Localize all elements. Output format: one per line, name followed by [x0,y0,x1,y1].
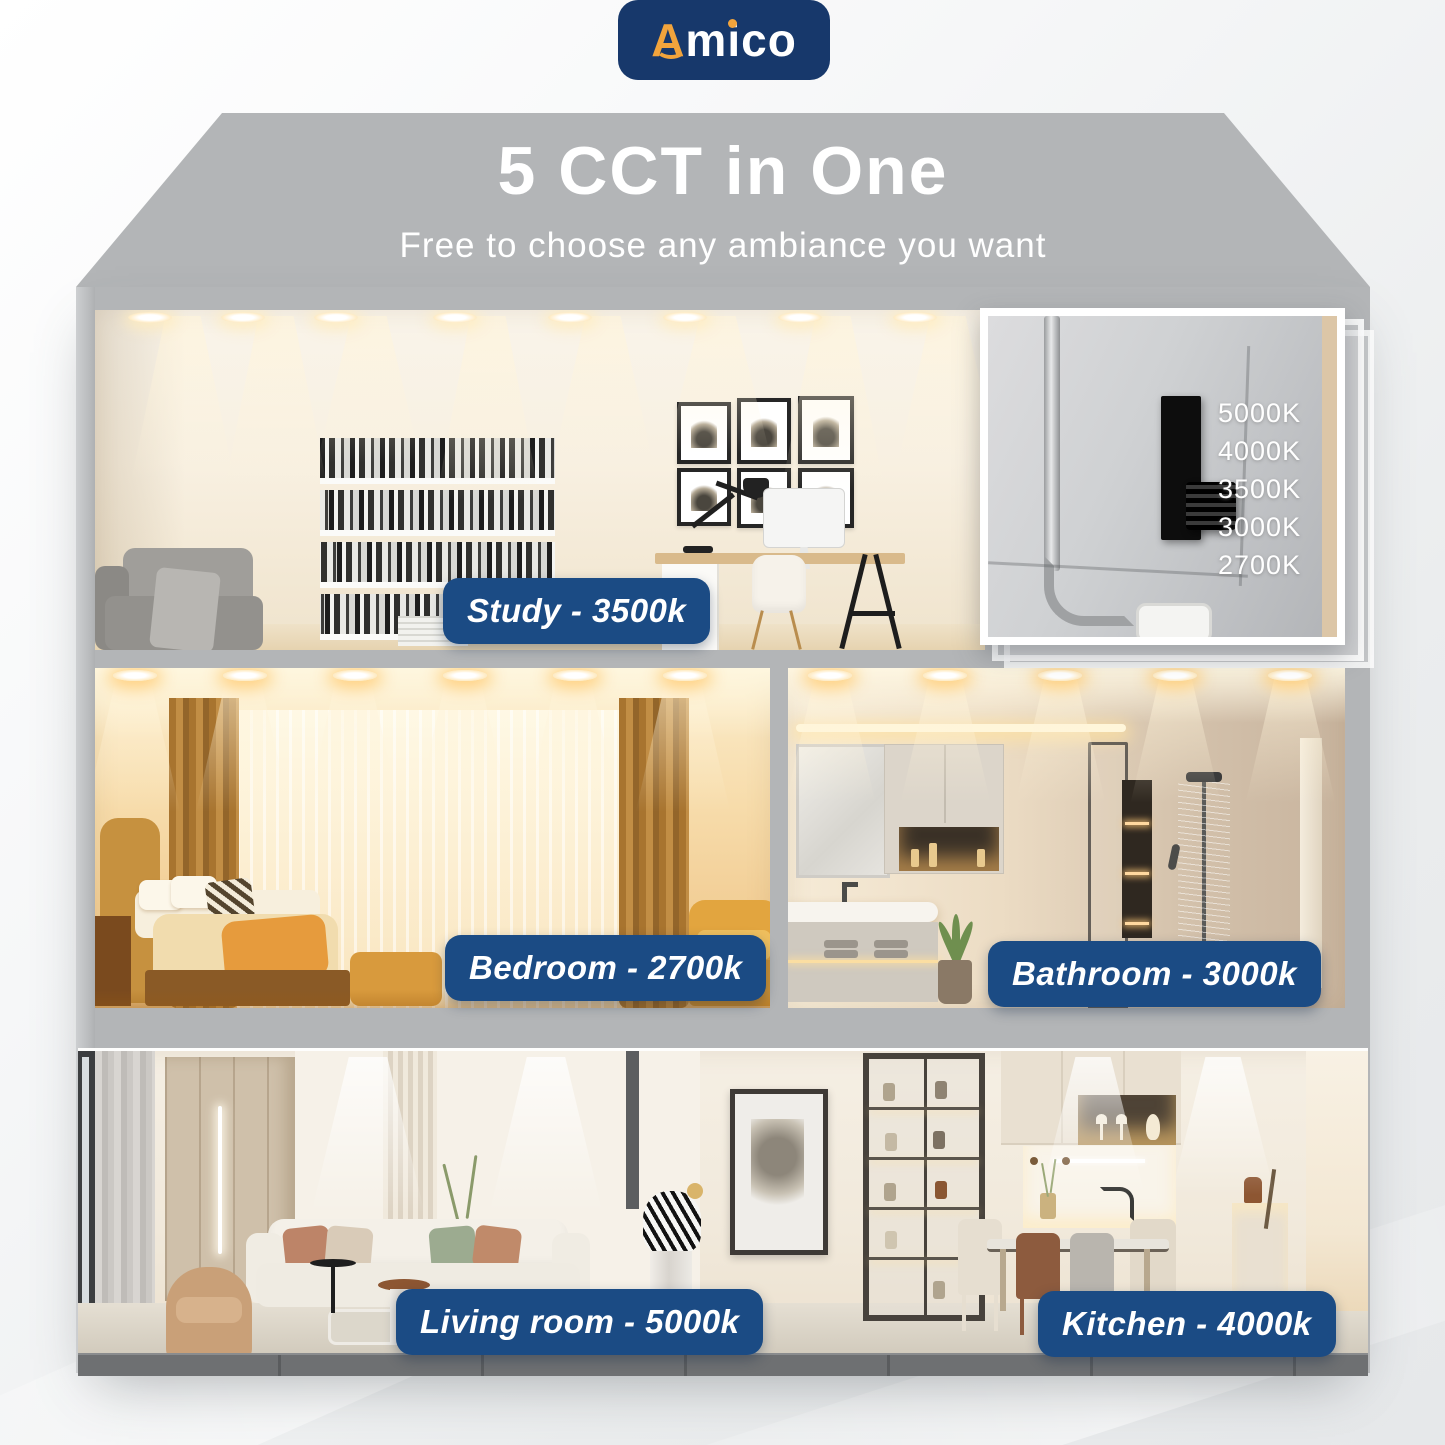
room-label-bathroom: Bathroom - 3000k [988,941,1321,1007]
towel-stack [874,940,908,948]
cct-option: 3000K [1218,512,1301,543]
recessed-downlight [548,312,592,323]
black-side-table [310,1259,356,1267]
sofa-blanket [149,567,221,650]
junction-box-photo: 5000K 4000K 3500K 3000K 2700K [988,316,1337,637]
towel-stack [824,950,858,958]
page-title: 5 CCT in One [76,132,1370,210]
light-beam [893,316,985,486]
light-beam [314,316,424,476]
logo-letters-co: co [741,13,797,67]
cable-clip [1136,603,1212,637]
light-beam [1243,674,1338,814]
light-beam [128,316,238,496]
recessed-downlight [333,670,377,681]
plant-pot [938,960,972,1004]
desk-lamp-base [683,546,713,553]
living-curtain [95,1051,155,1346]
cct-option: 5000K [1218,398,1301,429]
vanity-counter [788,902,938,922]
dining-chair [1016,1233,1060,1299]
zebra-sculpture [643,1191,701,1253]
light-beam [1128,674,1223,814]
towel-stack [874,950,908,958]
cct-option: 2700K [1218,550,1301,581]
room-label-bedroom: Bedroom - 2700k [445,935,766,1001]
recessed-downlight [1268,670,1312,681]
framed-artwork [730,1089,828,1255]
recessed-downlight [128,312,172,323]
recessed-downlight [433,312,477,323]
recessed-downlight [663,670,707,681]
dining-chair [1130,1219,1176,1295]
page-subtitle: Free to choose any ambiance you want [76,226,1370,266]
recessed-downlight [553,670,597,681]
towel-stack [824,940,858,948]
wall-knob [1030,1157,1038,1165]
recessed-downlight [923,670,967,681]
recessed-downlight [1038,670,1082,681]
light-beam [548,316,658,486]
cct-option-list: 5000K 4000K 3500K 3000K 2700K [1218,398,1301,581]
light-beam [663,316,773,466]
desk-chair [746,555,812,650]
table-leg [1000,1249,1006,1311]
recessed-downlight [443,670,487,681]
recessed-downlight [223,670,267,681]
poster-canvas: 5 CCT in One Free to choose any ambiance… [0,0,1445,1445]
dining-chair [1070,1233,1114,1299]
cabinet-niche [899,827,999,871]
vanity-drawers [788,922,938,1002]
hallway [1306,1051,1368,1311]
brand-logo: Amico [618,0,830,80]
recessed-downlight [1153,670,1197,681]
cct-option: 3500K [1218,474,1301,505]
logo-letter-a: A [651,13,685,67]
cct-switch-inset: 5000K 4000K 3500K 3000K 2700K [980,308,1345,645]
recessed-downlight [893,312,937,323]
room-label-kitchen: Kitchen - 4000k [1038,1291,1336,1357]
wall-led-light [218,1106,222,1254]
side-pedestal [1232,1203,1288,1303]
cct-option: 4000K [1218,436,1301,467]
recessed-downlight [778,312,822,323]
room-label-living: Living room - 5000k [396,1289,763,1355]
decor-bottle [1146,1114,1160,1140]
logo-letter-i: i [727,13,741,67]
brand-logo-text: Amico [651,13,797,67]
light-beam [221,316,331,506]
logo-letter-m: m [685,13,727,67]
accent-bar [626,1051,639,1209]
recessed-downlight [663,312,707,323]
vanity-faucet [842,882,847,902]
recessed-downlight [113,670,157,681]
recessed-downlight [314,312,358,323]
recessed-downlight [808,670,852,681]
desk-trestle-leg [843,553,899,650]
recessed-downlight [221,312,265,323]
study-sofa [95,548,263,650]
conduit-pipe [1044,316,1060,571]
light-beam [1168,1057,1278,1207]
light-beam [778,316,888,506]
room-label-study: Study - 3500k [443,578,710,644]
living-armchair [166,1267,252,1363]
light-beam [433,316,543,516]
fixture-edge [1322,316,1337,637]
dining-chair [958,1219,1002,1295]
